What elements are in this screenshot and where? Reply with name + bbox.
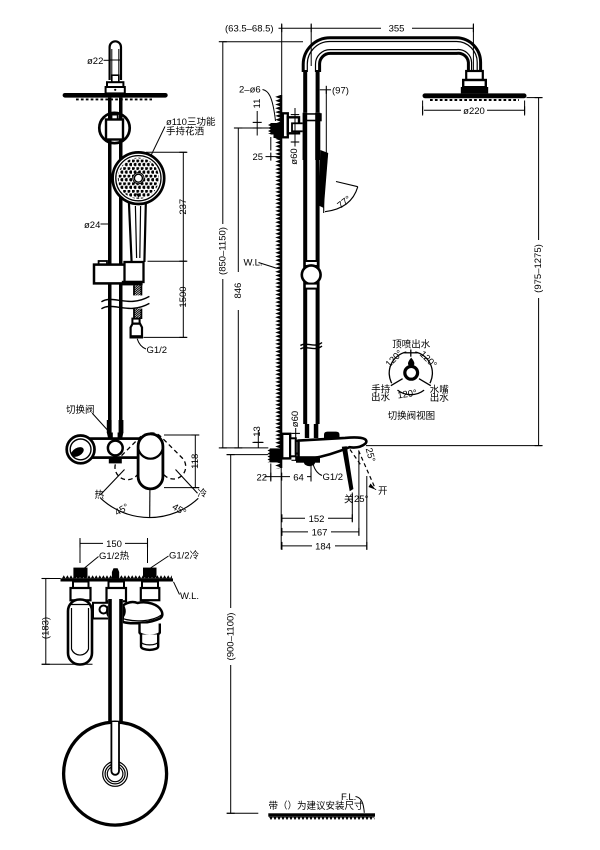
svg-text:13: 13	[252, 426, 263, 437]
svg-text:1500: 1500	[178, 286, 189, 307]
svg-text:237: 237	[178, 199, 189, 215]
svg-text:(63.5–68.5): (63.5–68.5)	[225, 24, 274, 35]
svg-text:手持花洒: 手持花洒	[166, 126, 205, 138]
svg-text:G1/2: G1/2	[147, 345, 168, 356]
svg-text:(900–1100): (900–1100)	[225, 613, 236, 661]
svg-text:(97): (97)	[332, 86, 349, 97]
svg-text:ø24: ø24	[84, 220, 100, 231]
svg-text:(850–1150): (850–1150)	[217, 227, 228, 275]
svg-text:出水: 出水	[371, 392, 391, 404]
svg-text:ø220: ø220	[463, 106, 485, 117]
svg-text:开: 开	[378, 486, 388, 497]
svg-text:ø60: ø60	[289, 148, 300, 164]
svg-text:(975–1275): (975–1275)	[533, 244, 544, 293]
svg-text:冷: 冷	[198, 488, 208, 500]
svg-text:22: 22	[257, 473, 268, 484]
svg-text:G1/2: G1/2	[323, 472, 344, 483]
svg-text:2–ø6: 2–ø6	[239, 85, 261, 96]
svg-text:G1/2冷: G1/2冷	[169, 550, 200, 562]
svg-text:(183): (183)	[40, 617, 51, 639]
svg-text:切换阀视图: 切换阀视图	[388, 410, 436, 422]
svg-text:11: 11	[252, 99, 263, 109]
svg-text:G1/2热: G1/2热	[99, 550, 130, 562]
svg-text:25: 25	[253, 152, 264, 163]
svg-text:ø22: ø22	[87, 56, 103, 67]
svg-text:切换阀: 切换阀	[66, 404, 95, 416]
svg-text:846: 846	[233, 283, 244, 299]
svg-text:355: 355	[389, 24, 405, 35]
svg-text:184: 184	[315, 541, 331, 552]
svg-text:150: 150	[106, 539, 122, 550]
svg-text:152: 152	[309, 514, 325, 525]
svg-text:64: 64	[293, 473, 304, 484]
svg-text:带（）为建议安装尺寸: 带（）为建议安装尺寸	[269, 800, 365, 812]
svg-text:出水: 出水	[430, 392, 450, 404]
svg-text:ø60: ø60	[290, 411, 301, 427]
svg-text:W.L.: W.L.	[180, 591, 199, 602]
svg-text:118: 118	[190, 454, 201, 469]
svg-text:167: 167	[312, 527, 328, 538]
svg-text:热: 热	[95, 489, 105, 501]
